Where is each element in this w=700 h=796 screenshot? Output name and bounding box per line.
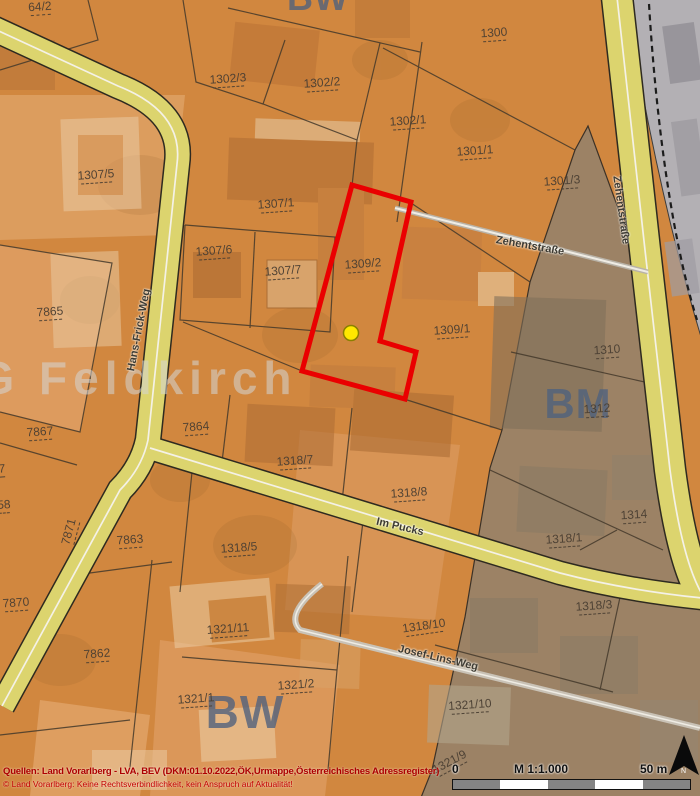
parcel-label-7864: 7864 bbox=[182, 420, 210, 437]
parcel-label-1307-7: 1307/7 bbox=[264, 263, 302, 281]
parcel-label-1318-3: 1318/3 bbox=[575, 598, 613, 616]
parcel-label-1300: 1300 bbox=[480, 26, 508, 43]
parcel-label-7: 7 bbox=[0, 462, 6, 477]
watermark-g-feldkirch: G Feldkirch bbox=[0, 351, 298, 405]
parcel-label-7870: 7870 bbox=[2, 596, 30, 613]
parcel-label-1318-7: 1318/7 bbox=[276, 453, 314, 471]
parcel-label-1309-1: 1309/1 bbox=[433, 322, 471, 340]
parcel-label-1318-5: 1318/5 bbox=[220, 540, 258, 558]
parcel-label-1302-2: 1302/2 bbox=[303, 75, 341, 93]
parcel-label-1310: 1310 bbox=[593, 343, 621, 360]
parcel-label-7862: 7862 bbox=[83, 647, 111, 664]
parcel-label-1321-1: 1321/1 bbox=[177, 691, 215, 709]
parcel-label-1321-10: 1321/10 bbox=[448, 697, 492, 715]
parcel-label-7863: 7863 bbox=[116, 533, 144, 550]
parcel-label-64-2: 64/2 bbox=[28, 0, 52, 16]
scale-ratio: M 1:1.000 bbox=[514, 762, 568, 776]
parcel-label-1314: 1314 bbox=[620, 508, 648, 525]
parcel-label-1309-2: 1309/2 bbox=[344, 256, 382, 274]
scale-bar bbox=[452, 779, 691, 790]
parcel-label-1321-11: 1321/11 bbox=[206, 621, 249, 639]
parcel-label-1301-3: 1301/3 bbox=[543, 173, 581, 191]
scale-distance: 50 m bbox=[640, 762, 667, 776]
watermark-bw: BW bbox=[287, 0, 349, 19]
parcel-label-7865: 7865 bbox=[36, 305, 64, 322]
parcel-label-1307-5: 1307/5 bbox=[77, 167, 115, 185]
scale-zero: 0 bbox=[452, 762, 459, 776]
parcel-label-1321-2: 1321/2 bbox=[277, 677, 315, 695]
parcel-label-1302-3: 1302/3 bbox=[209, 71, 247, 89]
disclaimer: © Land Vorarlberg: Keine Rechtsverbindli… bbox=[3, 779, 293, 789]
parcel-label-1301-1: 1301/1 bbox=[456, 143, 494, 161]
watermark-bw: BW bbox=[206, 685, 285, 739]
source-credit: Quellen: Land Vorarlberg - LVA, BEV (DKM… bbox=[3, 766, 439, 777]
parcel-label-58: 58 bbox=[0, 498, 11, 514]
parcel-label-7867: 7867 bbox=[26, 425, 54, 442]
parcel-label-1318-1: 1318/1 bbox=[545, 531, 583, 549]
parcel-label-1307-6: 1307/6 bbox=[195, 243, 233, 261]
parcel-label-1307-1: 1307/1 bbox=[257, 196, 295, 214]
parcel-label-1302-1: 1302/1 bbox=[389, 113, 427, 131]
parcel-label-1318-8: 1318/8 bbox=[390, 485, 428, 503]
parcel-label-1312: 1312 bbox=[583, 402, 611, 419]
north-arrow-label: N bbox=[681, 768, 686, 775]
cadastral-map-viewport[interactable]: N BWBWBMG Feldkirch 64/21302/31302/21302… bbox=[0, 0, 700, 796]
selection-dot bbox=[344, 326, 359, 341]
